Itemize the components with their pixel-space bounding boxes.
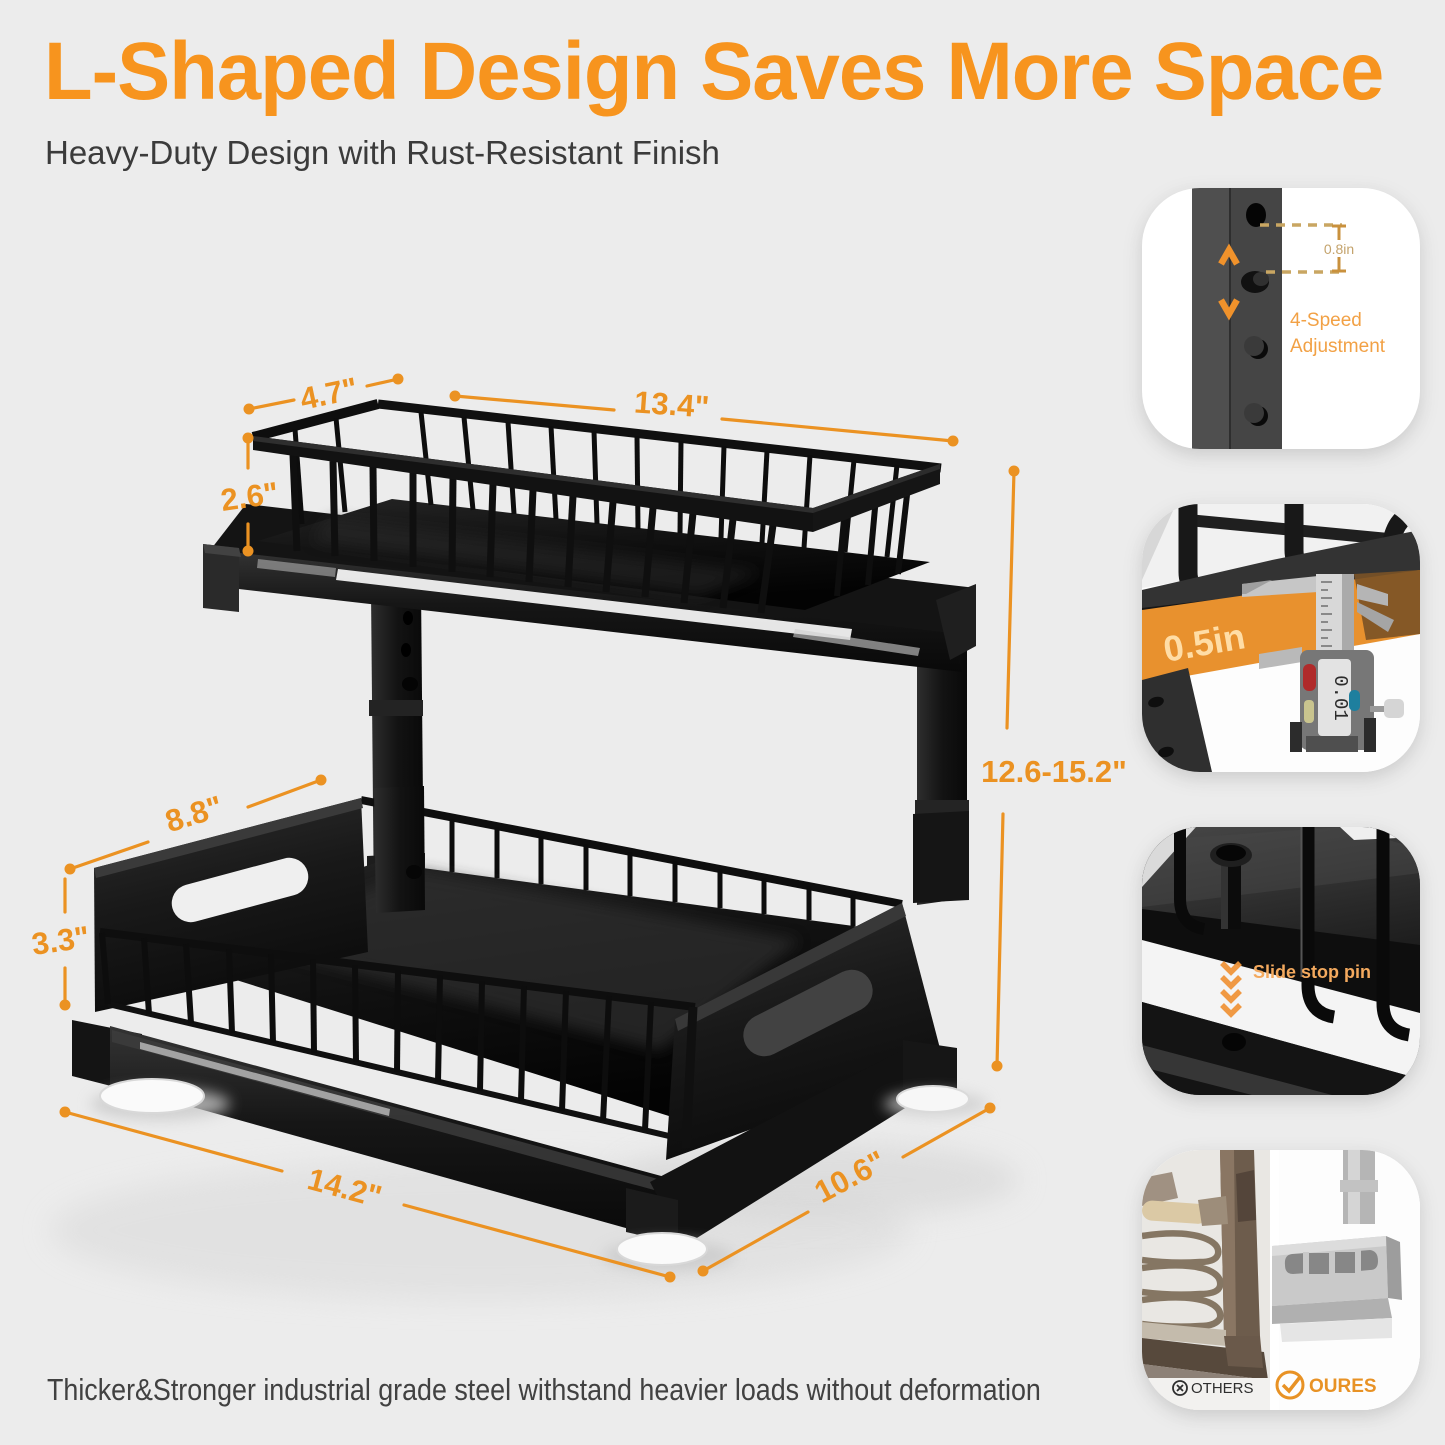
svg-text:Slide stop pin: Slide stop pin xyxy=(1253,962,1371,982)
svg-text:0.8in: 0.8in xyxy=(1324,241,1354,257)
svg-text:OURES: OURES xyxy=(1309,1376,1377,1397)
svg-text:4-Speed: 4-Speed xyxy=(1290,310,1362,331)
svg-text:0.01: 0.01 xyxy=(1329,675,1351,721)
svg-text:12.6-15.2": 12.6-15.2" xyxy=(981,754,1127,789)
svg-text:OTHERS: OTHERS xyxy=(1191,1380,1254,1397)
svg-text:3.3": 3.3" xyxy=(29,919,91,962)
svg-text:Adjustment: Adjustment xyxy=(1290,336,1386,357)
svg-text:13.4": 13.4" xyxy=(633,384,710,424)
svg-text:8.8": 8.8" xyxy=(161,789,227,839)
